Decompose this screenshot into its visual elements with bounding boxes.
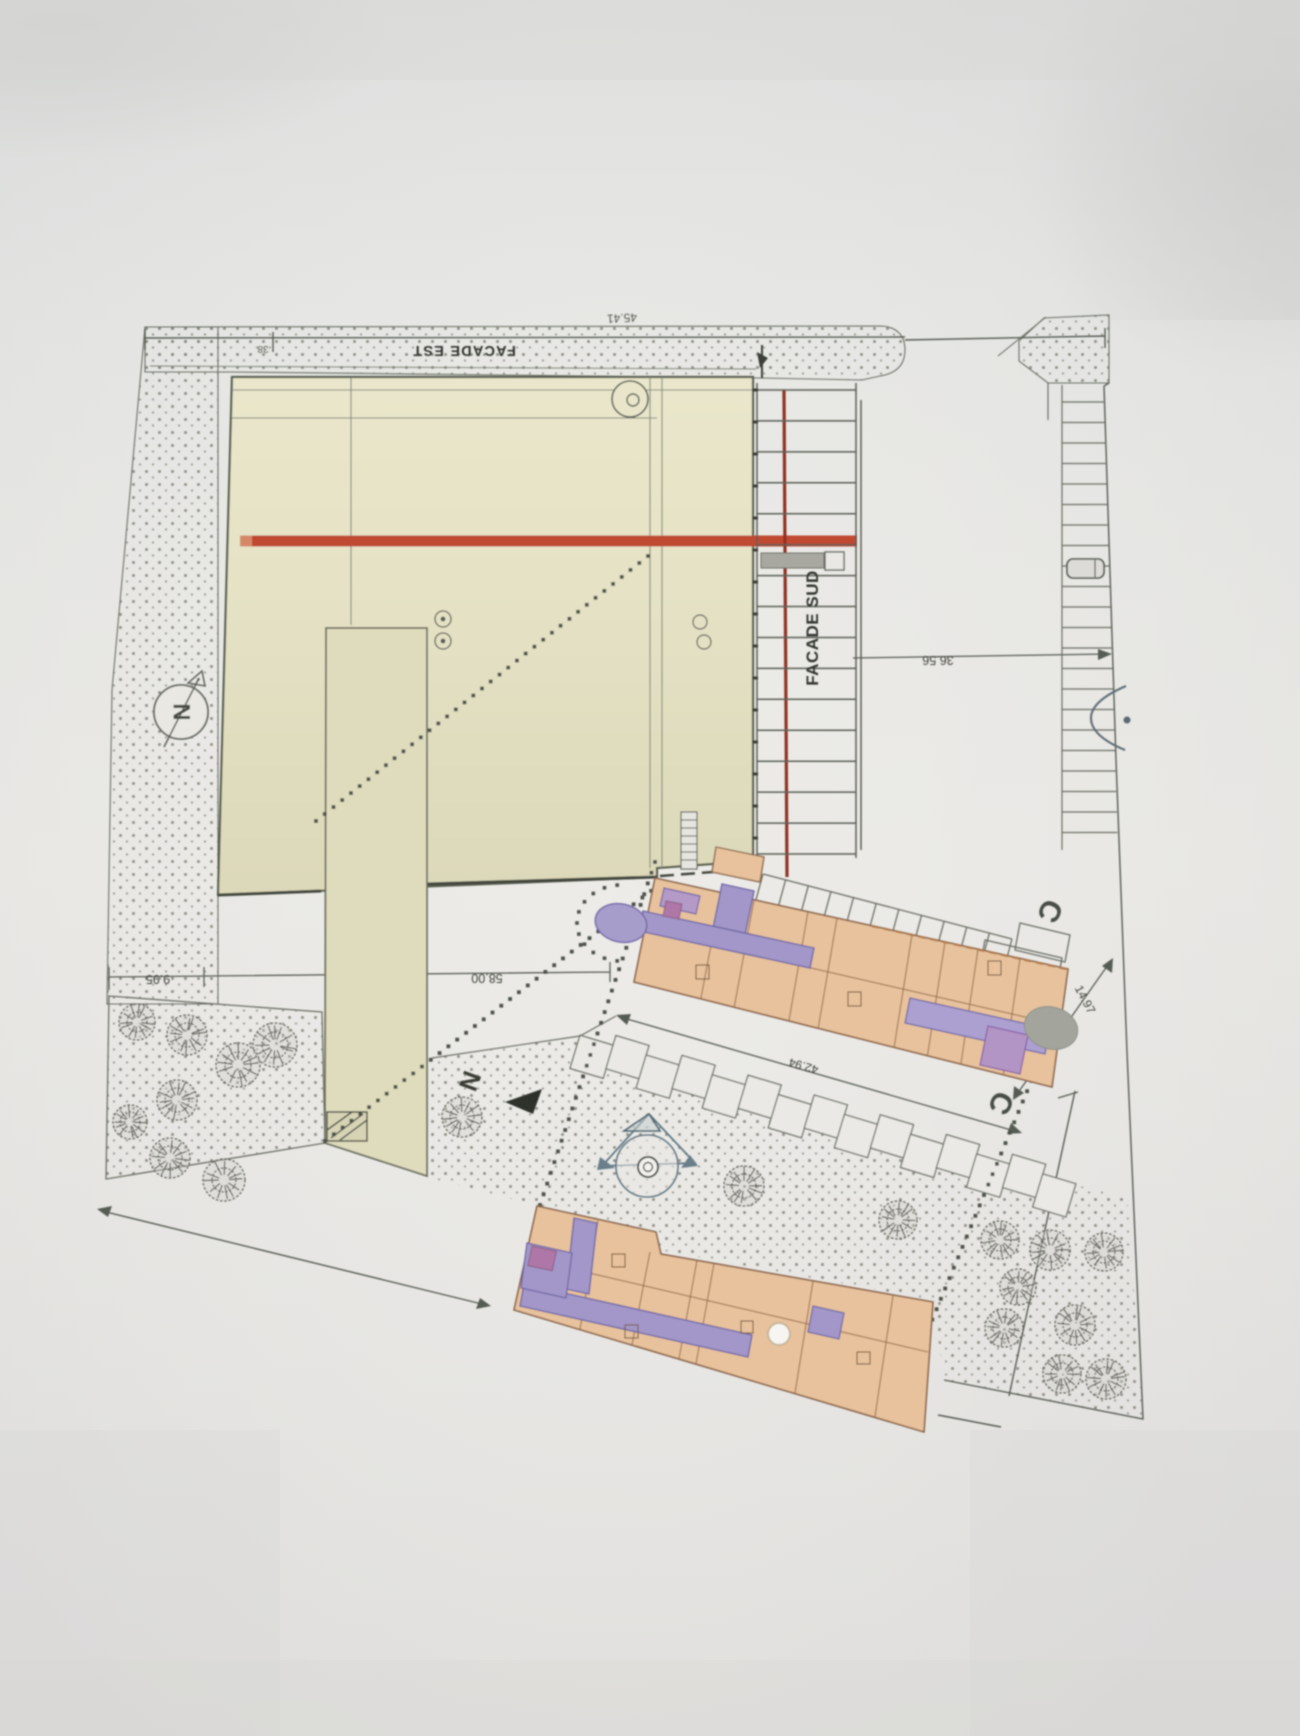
svg-text:58.00: 58.00 [471,971,502,985]
svg-text:38: 38 [257,343,269,354]
svg-text:FACADE EST: FACADE EST [412,342,516,358]
svg-text:9.95: 9.95 [146,972,170,986]
svg-text:N: N [169,703,196,720]
svg-text:36.56: 36.56 [922,653,953,667]
svg-text:45.41: 45.41 [606,310,637,326]
svg-text:FACADE SUD: FACADE SUD [803,570,822,686]
